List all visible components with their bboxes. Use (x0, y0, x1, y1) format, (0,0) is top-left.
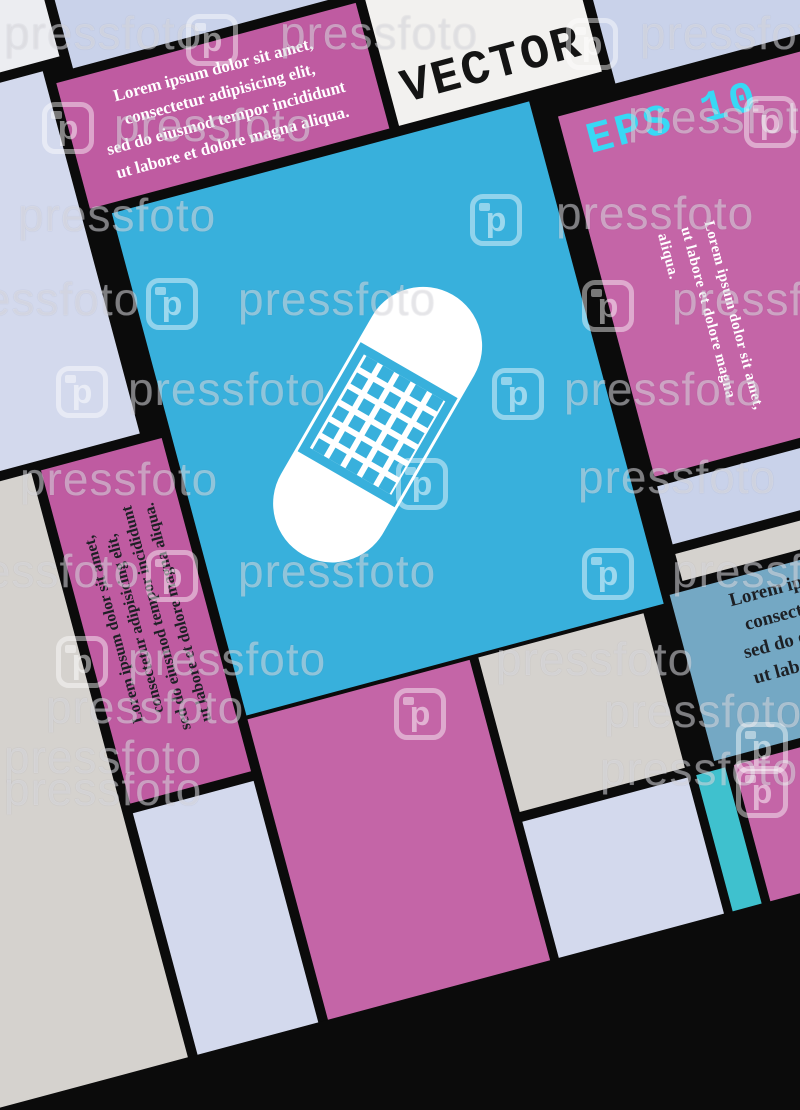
band-aid-pad-cell (392, 375, 410, 393)
band-aid-pad-cell (390, 417, 408, 435)
band-aid-pad-cell (371, 450, 389, 468)
tile-bottom-lavender (522, 777, 724, 957)
band-aid-pad-cell (329, 447, 347, 465)
rotated-tile-grid: Lorem ipsum dolor sit amet, consectetur … (0, 0, 800, 1110)
band-aid-pad-cell (406, 427, 424, 445)
band-aid-pad-cell (345, 457, 363, 475)
band-aid-pad-cell (338, 431, 356, 449)
band-aid-pad (298, 342, 458, 507)
band-aid-pad-cell (364, 424, 382, 442)
band-aid-pad-cell (380, 433, 398, 451)
band-aid-pad-cell (357, 398, 375, 416)
band-aid-pad-cell (387, 459, 405, 477)
eps-label: EPS 10 (581, 73, 764, 167)
band-aid-icon (252, 265, 504, 584)
band-aid-pad-cell (416, 410, 434, 428)
band-aid-pad-cell (399, 401, 417, 419)
band-aid-pad-cell (373, 408, 391, 426)
band-aid-pad-cell (425, 394, 443, 412)
band-aid-pad-cell (397, 443, 415, 461)
band-aid-pad-grid (312, 356, 443, 494)
band-aid-pad-cell (361, 466, 379, 484)
band-aid-pad-cell (322, 421, 340, 439)
band-aid-pad-cell (350, 372, 368, 390)
band-aid-pad-cell (341, 389, 359, 407)
band-aid-pad-cell (378, 476, 396, 494)
band-aid-pad-cell (312, 438, 330, 456)
band-aid-pad-cell (360, 356, 378, 374)
band-aid-pad-cell (383, 391, 401, 409)
band-aid-pad-cell (354, 440, 372, 458)
band-aid-pad-cell (348, 414, 366, 432)
band-aid-pad-cell (367, 382, 385, 400)
band-aid-pad-cell (409, 384, 427, 402)
band-aid-pad-cell (331, 405, 349, 423)
vertical-lorem-right: Lorem ipsum dolor sit amet, ut labore et… (650, 218, 779, 457)
band-aid-pad-cell (376, 365, 394, 383)
